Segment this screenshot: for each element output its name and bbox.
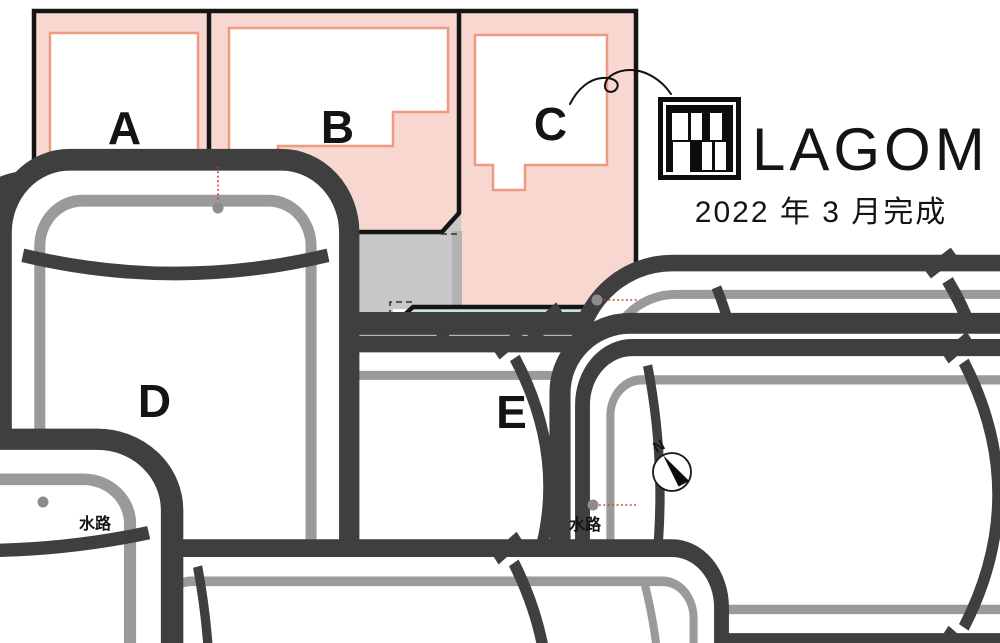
lot-b-label: B [321,101,355,153]
site-plan-flyer: A B C D E 水路 水路 LAGOM 2022 年 3 月完成 N [0,0,1000,643]
lagom-logo: LAGOM 2022 年 3 月完成 [658,97,989,229]
edge-strip-c [452,231,462,305]
car [133,537,722,643]
marker-dot [213,203,224,214]
completion-date: 2022 年 3 月完成 [695,196,947,229]
lagom-house-icon [658,97,741,180]
car [0,439,186,643]
lot-e-label: E [496,386,528,438]
water-label-left: 水路 [79,514,112,533]
site-plan-svg: A B C D E 水路 水路 LAGOM 2022 年 3 月完成 N [0,0,1000,643]
water-label-right: 水路 [569,515,602,534]
marker-dot [38,497,49,508]
lot-a-label: A [108,102,142,154]
lot-c-label: C [534,98,568,150]
lot-d-label: D [138,375,172,427]
brand-name: LAGOM [752,116,989,183]
marker-dot [592,295,603,306]
marker-dot [588,500,599,511]
